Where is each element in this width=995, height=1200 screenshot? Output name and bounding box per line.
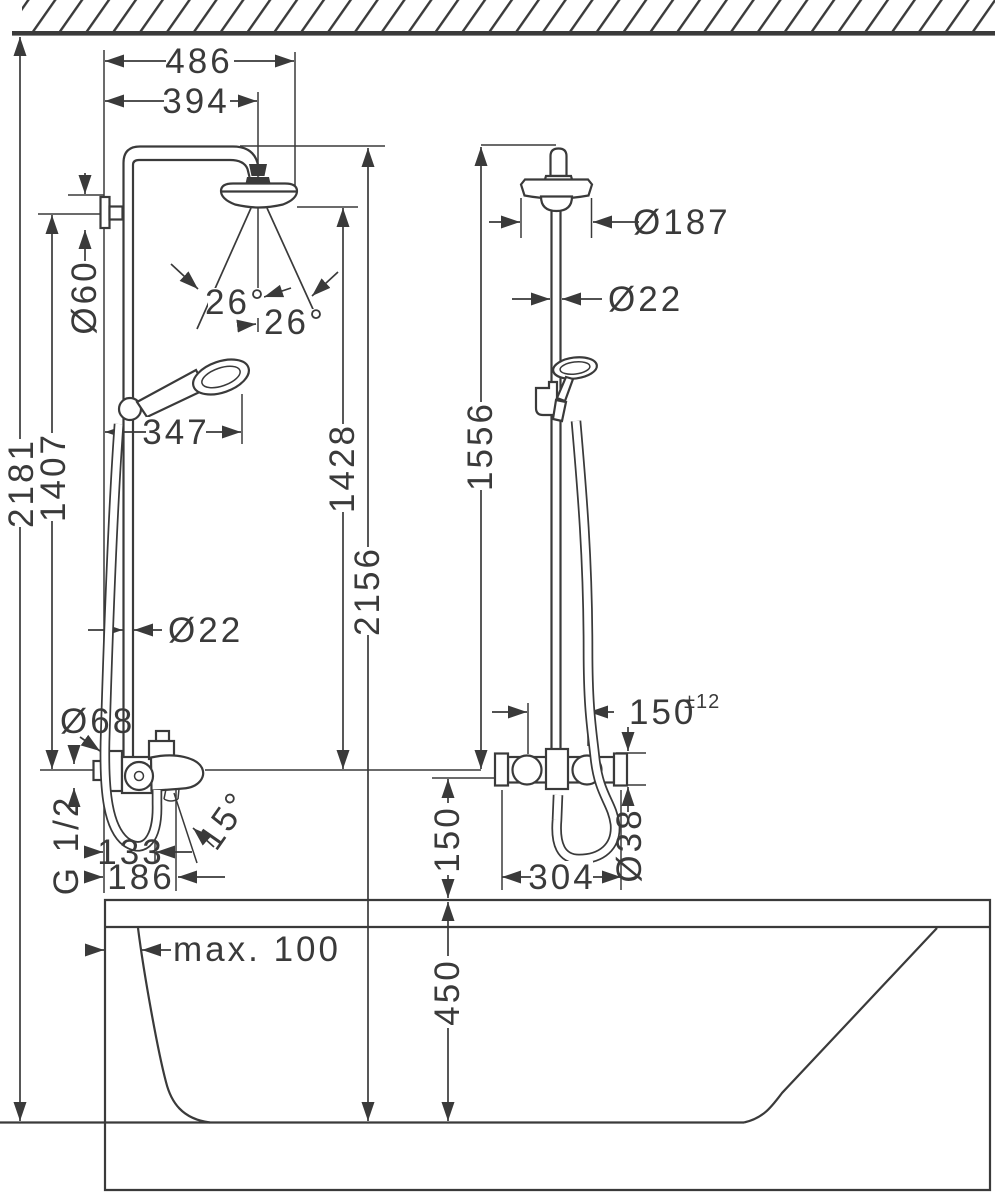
dim-label-dia60: Ø60 <box>65 259 104 334</box>
dim-label-186: 186 <box>107 858 174 897</box>
technical-drawing: 486 394 2181 1407 Ø60 26° 26° 347 Ø22 Ø6… <box>0 0 995 1200</box>
riser-pipe <box>124 147 261 771</box>
ceiling-line <box>12 31 995 36</box>
thermostat-cap-left <box>495 754 508 786</box>
front-view-shower <box>94 147 298 847</box>
dim-label-2156: 2156 <box>348 546 387 636</box>
dim-label-dia187: Ø187 <box>633 203 731 242</box>
mixer-handle <box>125 762 153 790</box>
dim-label-150-height: 150 <box>428 805 467 872</box>
hose-connector <box>553 400 566 421</box>
thermostat-cap-right <box>614 754 627 786</box>
dim-label-1556: 1556 <box>461 401 500 491</box>
dim-label-max100: max. 100 <box>173 930 341 969</box>
angle-label-26-upper: 26° <box>205 283 267 322</box>
dim-label-1407: 1407 <box>34 432 73 522</box>
dim-label-450: 450 <box>428 958 467 1025</box>
dim-label-1428: 1428 <box>323 423 362 513</box>
dim-label-394: 394 <box>162 82 229 121</box>
bath-spout <box>151 755 203 790</box>
label-thread-g12: G 1/2 <box>47 795 86 896</box>
dim-label-tolerance: ±12 <box>684 691 720 713</box>
dim-label-dia22-front: Ø22 <box>168 611 243 650</box>
dim-label-dia68: Ø68 <box>60 702 135 741</box>
bathtub <box>0 900 990 1190</box>
thermostat-center <box>546 749 568 789</box>
dim-label-304: 304 <box>528 858 595 897</box>
angle-label-15: 15° <box>191 784 258 857</box>
wall-bracket <box>101 197 110 228</box>
side-view-shower <box>495 149 627 860</box>
dim-label-486: 486 <box>165 42 232 81</box>
angle-label-26-lower: 26° <box>264 303 326 342</box>
tub-interior-right <box>744 928 937 1123</box>
swivel-stem <box>551 149 567 177</box>
drawing-canvas: 486 394 2181 1407 Ø60 26° 26° 347 Ø22 Ø6… <box>0 0 995 1200</box>
ceiling-hatch <box>22 0 995 31</box>
dim-label-347: 347 <box>142 413 209 452</box>
wall-bracket-arm <box>110 207 123 220</box>
ceiling <box>12 0 995 36</box>
dim-label-dia38: Ø38 <box>610 807 649 882</box>
head-connector-icon <box>249 164 267 176</box>
hand-shower-back <box>552 355 598 381</box>
overhead-shower <box>221 184 297 208</box>
dim-label-dia22-side: Ø22 <box>608 280 683 319</box>
thermostat-handle-left <box>513 756 542 785</box>
ball-joint <box>541 197 572 212</box>
